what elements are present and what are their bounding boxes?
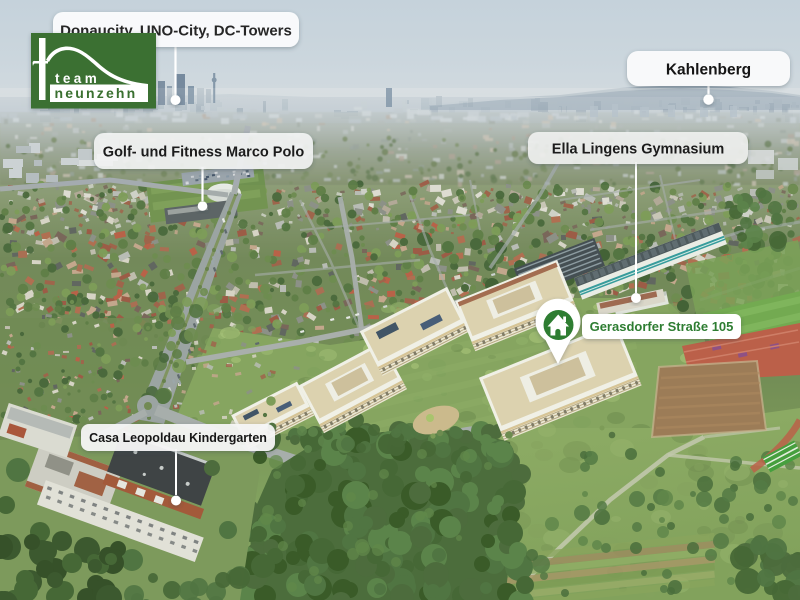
svg-text:team: team — [55, 71, 100, 86]
svg-text:Ella Lingens Gymnasium: Ella Lingens Gymnasium — [552, 142, 724, 158]
svg-text:Casa Leopoldau Kindergarten: Casa Leopoldau Kindergarten — [89, 431, 267, 445]
svg-text:Gerasdorfer Straße 105: Gerasdorfer Straße 105 — [590, 319, 734, 334]
svg-text:Golf- und Fitness Marco Polo: Golf- und Fitness Marco Polo — [103, 145, 305, 161]
svg-text:Kahlenberg: Kahlenberg — [666, 62, 751, 79]
svg-text:neunzehn: neunzehn — [55, 85, 138, 101]
